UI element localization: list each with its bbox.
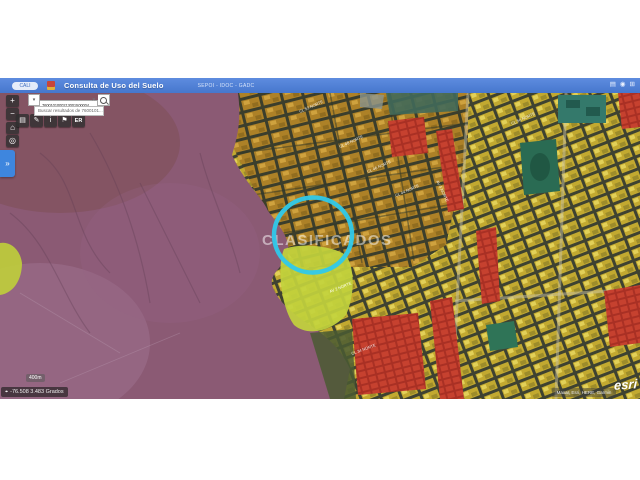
city-logo[interactable]: CALI (12, 82, 38, 90)
app-window: CALI Consulta de Uso del Suelo SEPOI - I… (0, 0, 640, 480)
search-button[interactable] (98, 94, 110, 106)
panel-toggle-tab[interactable]: » (0, 150, 15, 177)
zoom-in-button[interactable]: + (6, 95, 19, 107)
search-bar: ▾ ✕ (28, 94, 110, 106)
scale-bar: 400m (26, 374, 45, 382)
info-icon: i (50, 117, 52, 125)
basemap-icon: ▤ (19, 117, 26, 125)
map-attribution: Maxar, Esri, HERE, Garmin (552, 388, 616, 397)
user-icon[interactable]: ◉ (620, 82, 626, 89)
clear-search-icon[interactable]: ✕ (92, 97, 96, 103)
watermark-text: CLASIFICADOS (262, 232, 393, 249)
esri-logo: esri (614, 376, 638, 393)
locate-button[interactable]: ◎ (6, 135, 19, 147)
layers-icon[interactable]: ▤ (610, 82, 616, 89)
search-suggestion[interactable]: Buscar resultados de 7600101... (34, 106, 104, 116)
secondary-logo (47, 81, 55, 90)
basemap-tool-button[interactable]: ▤ (16, 114, 29, 127)
flag-icon: ⚑ (61, 117, 67, 125)
page-title: Consulta de Uso del Suelo (64, 81, 164, 90)
coordinate-readout: ⌖ -76.508 3.483 Grados (1, 387, 68, 397)
apps-icon[interactable]: ⊞ (630, 82, 635, 89)
coordinate-text: -76.508 3.483 Grados (10, 389, 64, 395)
crosshair-icon: ⌖ (5, 389, 8, 396)
search-dropdown-button[interactable]: ▾ (28, 94, 40, 106)
app-header: CALI Consulta de Uso del Suelo SEPOI - I… (0, 78, 640, 93)
search-icon (100, 97, 107, 104)
er-label: ER (75, 117, 83, 125)
map-viewport[interactable]: CL 52 NORTE CL 48 NORTE CL 46 NORTE CL 4… (0, 93, 640, 399)
map-canvas[interactable]: CL 52 NORTE CL 48 NORTE CL 46 NORTE CL 4… (0, 93, 640, 399)
pencil-icon: ✎ (34, 117, 40, 125)
header-links[interactable]: SEPOI - IDOC - GADC (198, 83, 255, 89)
